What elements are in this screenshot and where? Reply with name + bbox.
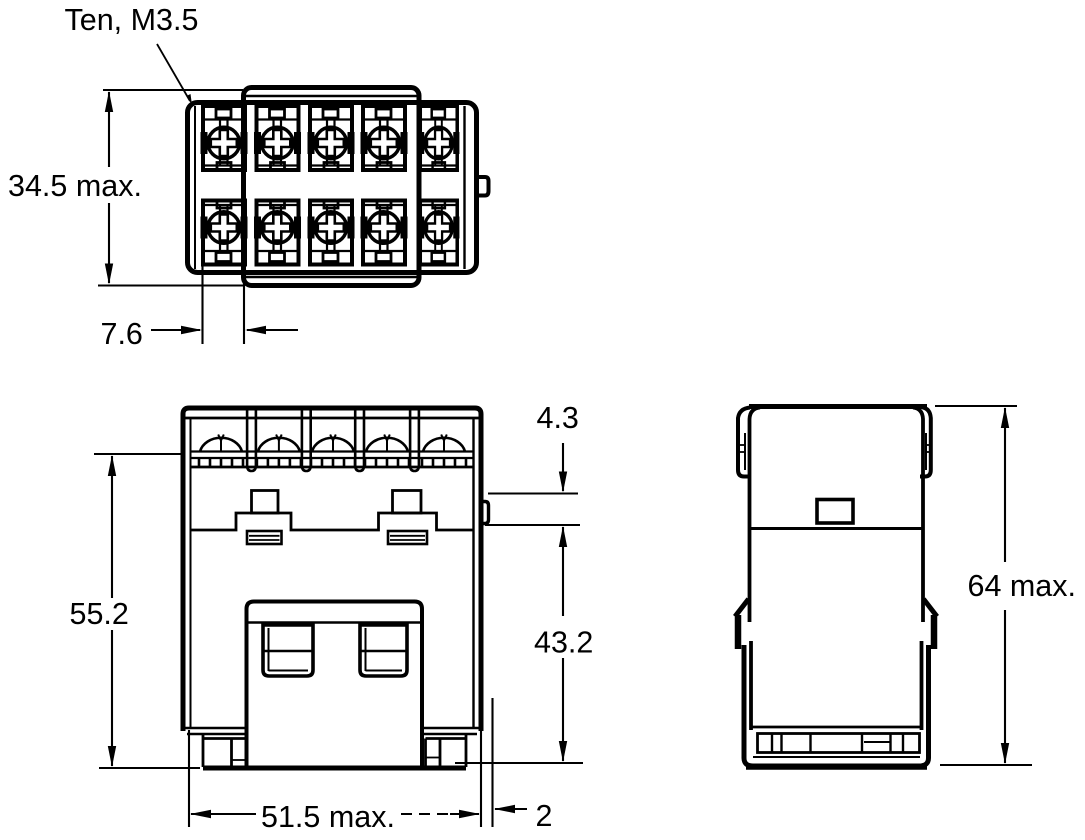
svg-text:43.2: 43.2: [534, 626, 593, 660]
svg-text:7.6: 7.6: [101, 317, 143, 351]
svg-text:34.5 max.: 34.5 max.: [8, 169, 142, 203]
svg-text:64 max.: 64 max.: [968, 569, 1077, 603]
svg-text:55.2: 55.2: [70, 597, 129, 631]
svg-text:4.3: 4.3: [537, 401, 579, 435]
svg-text:51.5 max.: 51.5 max.: [261, 800, 395, 834]
svg-text:Ten, M3.5: Ten, M3.5: [65, 3, 199, 37]
svg-text:2: 2: [536, 799, 553, 833]
